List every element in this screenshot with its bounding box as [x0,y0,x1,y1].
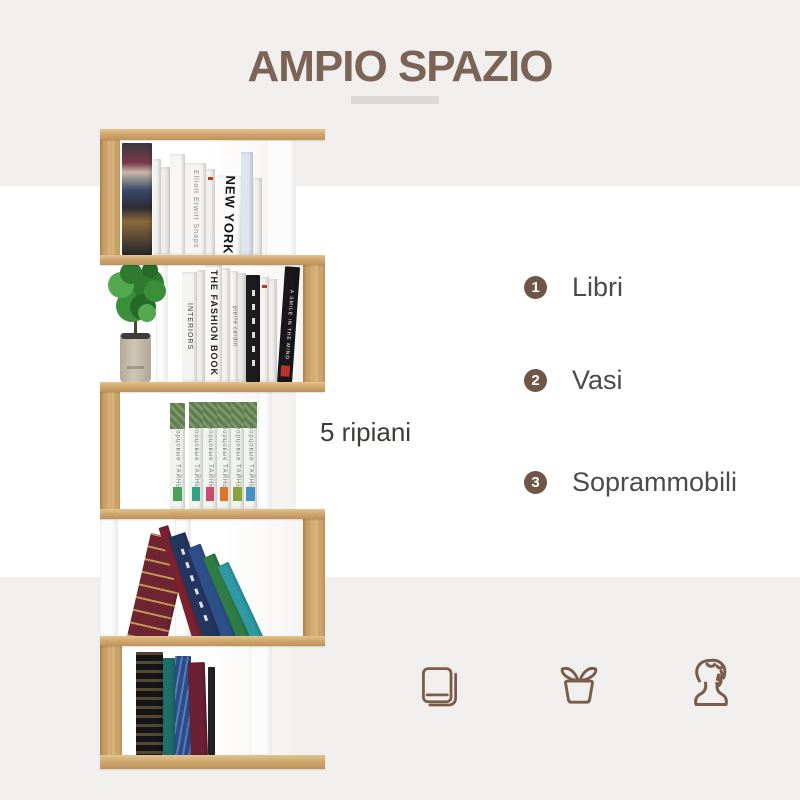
shelf-caption: 5 ripiani [320,417,411,448]
feature-row-libri: 1 Libri [524,270,623,304]
book-spine [206,169,215,255]
plant-leaf-cluster [120,262,142,284]
book-spine-title: Дворцовые ТАЙНЫ [203,402,217,509]
book-spine-title: pierre cardin [230,271,238,382]
book-spine [260,277,269,382]
title-underline [351,96,439,104]
plant-pot [120,333,151,383]
tier3-oak-left [100,392,120,509]
shelf-board-2 [100,382,325,392]
book-spine [122,143,152,255]
book-spine [197,270,205,382]
bust-statue-icon [686,653,736,715]
book-spine [170,154,185,255]
book-spine [269,279,277,382]
book-spine: Дворцовые ТАЙНЫ [189,402,203,509]
book-spine-title: Дворцовые ТАЙНЫ [231,402,244,509]
book-spine: Дворцовые ТАЙНЫ [231,402,244,509]
shelf-board-1 [100,255,325,265]
book-spine [238,273,246,382]
feature-number-badge: 3 [524,471,547,494]
plant-leaf-cluster [138,304,156,322]
book-spine-title: Дворцовые ТАЙНЫ [244,402,257,509]
book-spine-title: Дворцовые ТАЙНЫ [217,402,231,509]
tier4-white-left-panel [100,519,118,636]
book-spine [208,667,215,755]
book-spine: Дворцовые ТАЙНЫ [217,402,231,509]
book-spine [222,268,230,382]
tier5-white-divider [250,646,272,755]
tier4-oak-right [303,519,325,636]
page-title: AMPIO SPAZIO [0,42,800,92]
tier3-white-divider [258,392,272,509]
shelf-board-3 [100,509,325,519]
potted-plant-icon [555,654,603,714]
feature-label: Vasi [572,365,623,396]
book-spine-title: NEW YORK [215,175,244,256]
book-spine: Elliott Erwitt Snaps [185,163,206,255]
feature-label: Soprammobili [572,467,737,498]
shelf-board-4 [100,636,325,646]
book-spine [163,658,175,755]
book-spine [253,178,262,255]
tier2-oak-right [303,265,325,382]
plant-leaf-cluster [144,280,166,302]
book-spine: Дворцовые ТАЙНЫ [170,403,185,509]
feature-label: Libri [572,272,623,303]
tier5-oak-left [100,646,122,755]
book-spine: Дворцовые ТАЙНЫ [244,402,257,509]
plant-foliage [108,264,166,330]
book-spine [241,152,253,255]
book-spine [136,652,163,755]
book-spine-title: Дворцовые ТАЙНЫ [189,402,203,509]
feature-number-badge: 2 [524,369,547,392]
book-spine [246,275,260,382]
book-spine [161,167,170,255]
book-spine: pierre cardin [230,271,238,382]
book-spine-title: INTERIORS [182,272,197,382]
book-icon [417,662,463,714]
feature-row-soprammobili: 3 Soprammobili [524,465,737,499]
book-spine: INTERIORS [182,272,197,382]
book-spine: NEW YORK [215,175,244,256]
tier1-white-panel [266,140,296,255]
shelf-base-panel [100,755,325,769]
book-spine-title: Дворцовые ТАЙНЫ [170,403,185,509]
book-spine-title: Elliott Erwitt Snaps [185,163,206,255]
book-spine: THE FASHION BOOK [205,265,222,382]
feature-row-vasi: 2 Vasi [524,363,623,397]
tier1-oak-left [100,140,120,255]
shelf-top-panel [100,129,325,140]
book-spine-title: THE FASHION BOOK [205,265,222,382]
book-spine [188,662,208,756]
product-infographic: { "header": { "title": "AMPIO SPAZIO" },… [0,0,800,800]
book-spine [153,159,161,255]
feature-number-badge: 1 [524,276,547,299]
book-spine: Дворцовые ТАЙНЫ [203,402,217,509]
